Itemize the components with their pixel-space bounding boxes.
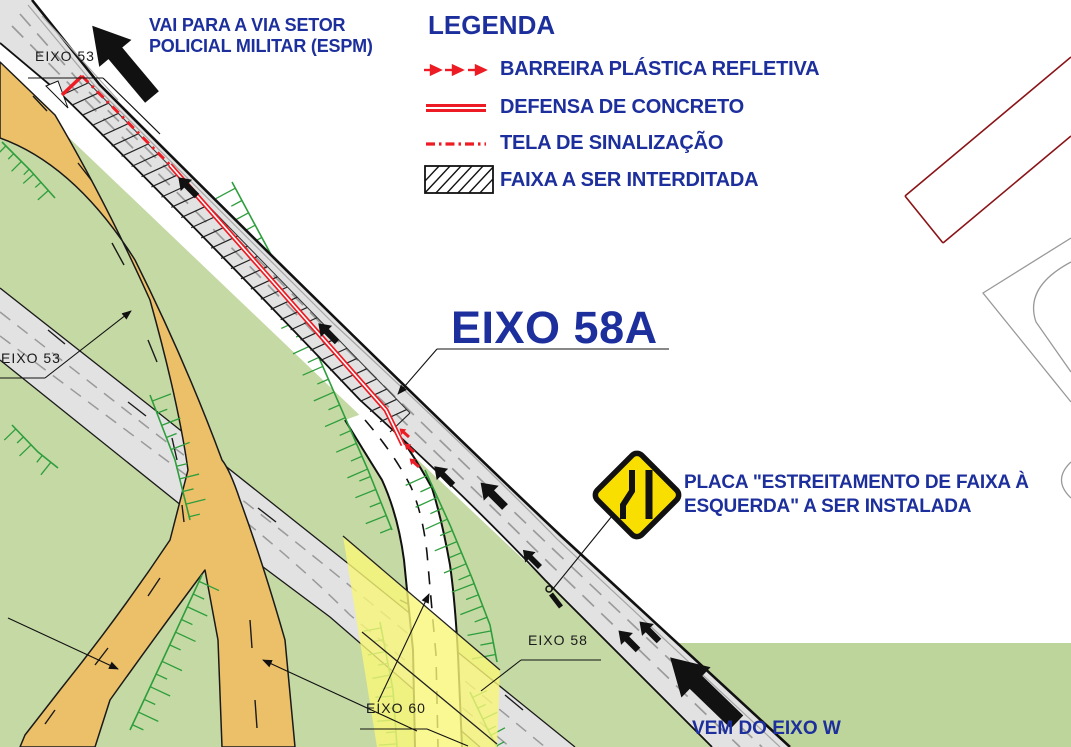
road-outline-east (983, 238, 1071, 498)
destination-note: VAI PARA A VIA SETOR POLICIAL MILITAR (E… (149, 15, 373, 56)
sign-note-line2: ESQUERDA" A SER INSTALADA (684, 495, 1029, 519)
legend: LEGENDA BARREIRA PLÁSTICA REFLETIVA DEFE… (424, 10, 924, 210)
lane-narrows-left-sign-icon (592, 450, 681, 539)
legend-item-label: BARREIRA PLÁSTICA REFLETIVA (500, 58, 819, 81)
destination-note-line1: VAI PARA A VIA SETOR (149, 15, 373, 36)
sign-note: PLACA "ESTREITAMENTO DE FAIXA À ESQUERDA… (684, 471, 1029, 519)
hatched-box-icon (424, 165, 496, 195)
building-outline (905, 57, 1071, 243)
destination-note-line2: POLICIAL MILITAR (ESPM) (149, 36, 373, 57)
legend-item-faixa: FAIXA A SER INTERDITADA (424, 165, 758, 195)
eixo58a-axis-label: EIXO 58A (451, 302, 658, 354)
eixo58a-leader-arrow (398, 349, 437, 394)
legend-item-tela: TELA DE SINALIZAÇÃO (424, 132, 723, 155)
legend-item-defensa: DEFENSA DE CONCRETO (424, 96, 744, 119)
red-dashdot-line-icon (424, 137, 496, 151)
legend-item-label: TELA DE SINALIZAÇÃO (500, 132, 723, 155)
eixo53-west-label: EIXO 53 (1, 350, 61, 366)
red-double-line-icon (424, 101, 496, 115)
origin-note: VEM DO EIXO W (692, 718, 841, 740)
legend-item-barreira: BARREIRA PLÁSTICA REFLETIVA (424, 58, 819, 81)
sign-note-line1: PLACA "ESTREITAMENTO DE FAIXA À (684, 471, 1029, 495)
red-barrier-arrows-icon (424, 62, 496, 78)
eixo60-axis-label: EIXO 60 (366, 700, 426, 716)
traffic-plan-canvas: VAI PARA A VIA SETOR POLICIAL MILITAR (E… (0, 0, 1071, 747)
eixo58-axis-label: EIXO 58 (528, 632, 588, 648)
legend-item-label: DEFENSA DE CONCRETO (500, 96, 744, 119)
legend-title: LEGENDA (428, 10, 555, 41)
eixo53-top-label: EIXO 53 (35, 48, 95, 64)
legend-item-label: FAIXA A SER INTERDITADA (500, 169, 758, 192)
